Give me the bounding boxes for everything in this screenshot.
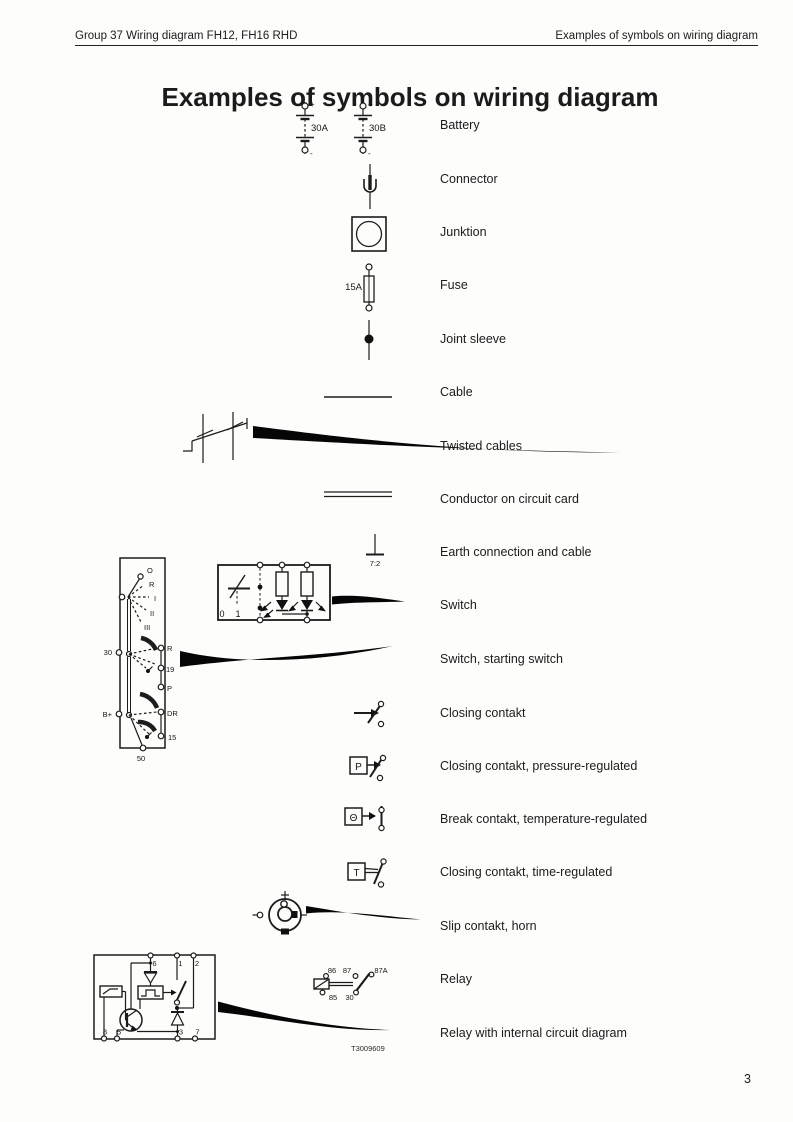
svg-text:7:2: 7:2 [370, 559, 380, 568]
connector-symbol-icon [364, 164, 376, 209]
svg-text:0: 0 [219, 609, 224, 619]
svg-text:I: I [154, 594, 156, 603]
svg-text:T: T [353, 868, 359, 879]
svg-text:30: 30 [345, 993, 353, 1002]
svg-text:II: II [150, 609, 154, 618]
svg-text:30A: 30A [311, 123, 329, 134]
svg-text:19: 19 [166, 665, 174, 674]
svg-text:86: 86 [328, 966, 336, 975]
twisted-cables-symbol-icon [183, 412, 620, 463]
svg-text:Θ: Θ [350, 813, 358, 824]
closing-contact-time-symbol-icon: T [348, 859, 386, 887]
slip-contact-symbol-icon [253, 891, 422, 935]
svg-text:-: - [310, 149, 313, 158]
manual-page: Group 37 Wiring diagram FH12, FH16 RHD E… [0, 0, 793, 1122]
svg-text:1: 1 [235, 609, 240, 619]
symbol-artwork: + - 30A + - 30B [0, 0, 793, 1122]
svg-text:+: + [368, 100, 373, 109]
svg-text:6: 6 [152, 959, 156, 968]
svg-text:III: III [144, 623, 150, 632]
fuse-symbol-icon: 15A [345, 264, 374, 311]
svg-text:30: 30 [104, 648, 112, 657]
svg-text:15: 15 [168, 733, 176, 742]
svg-text:O: O [147, 566, 153, 575]
svg-text:P: P [167, 684, 172, 693]
svg-text:B+: B+ [103, 710, 113, 719]
svg-text:87: 87 [343, 966, 351, 975]
svg-text:R: R [149, 580, 155, 589]
svg-text:85: 85 [329, 993, 337, 1002]
svg-text:7: 7 [195, 1028, 199, 1037]
break-contact-temperature-symbol-icon: Θ [345, 806, 384, 831]
svg-text:30B: 30B [369, 123, 386, 134]
battery-symbol-icon: + - 30A + - 30B [296, 100, 386, 158]
svg-text:3: 3 [179, 1028, 183, 1037]
closing-contact-pressure-symbol-icon: P [350, 755, 386, 780]
closing-contact-symbol-icon [354, 701, 384, 726]
svg-text:87A: 87A [374, 966, 387, 975]
svg-text:DR: DR [167, 709, 178, 718]
conductor-symbol-icon [324, 492, 392, 497]
svg-text:P: P [355, 762, 362, 773]
svg-text:-: - [368, 149, 371, 158]
svg-text:2: 2 [195, 959, 199, 968]
earth-symbol-icon: 7:2 [366, 534, 384, 568]
joint-sleeve-symbol-icon [365, 320, 374, 360]
switch-symbol-icon: 0 1 [218, 562, 405, 623]
svg-text:+: + [310, 100, 315, 109]
relay-symbol-icon: 86 87 87A 85 30 [314, 966, 388, 1002]
svg-text:50: 50 [137, 754, 145, 763]
svg-text:R: R [167, 644, 173, 653]
junction-symbol-icon [352, 217, 386, 251]
svg-text:15A: 15A [345, 282, 363, 293]
svg-text:1: 1 [178, 959, 182, 968]
